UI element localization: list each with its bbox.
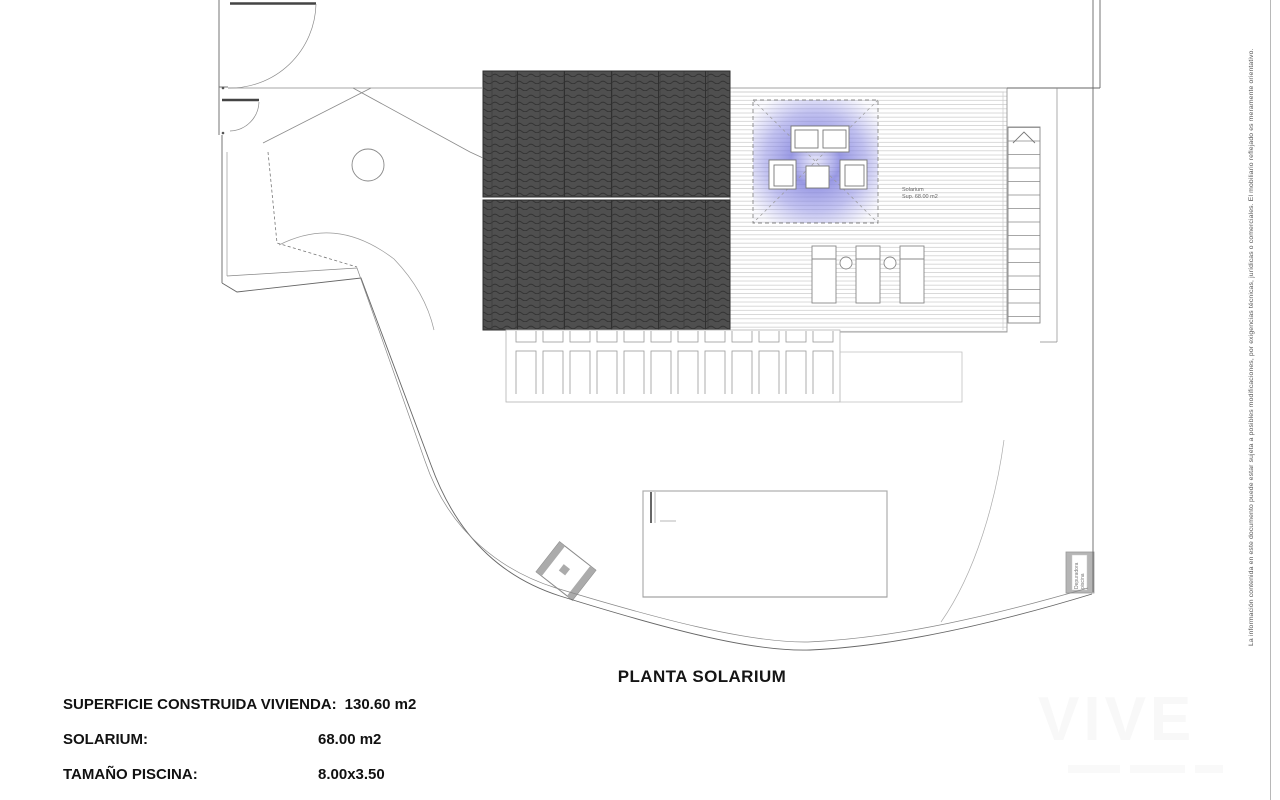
armchair-left bbox=[769, 160, 796, 189]
legend-value: 130.60 m2 bbox=[345, 696, 417, 713]
watermark-tagline-block bbox=[1195, 765, 1223, 773]
watermark-logo: VIVE bbox=[1038, 684, 1195, 755]
sheet-frame-rule bbox=[1270, 0, 1271, 800]
coffee-table bbox=[806, 166, 829, 188]
driveway-gates bbox=[222, 4, 316, 135]
legend-row: TAMAÑO PISCINA: 8.00x3.50 bbox=[63, 766, 416, 783]
drawing-sheet: Depuradora piscina bbox=[0, 0, 1280, 800]
pool-equipment-box: Depuradora piscina bbox=[1066, 552, 1094, 593]
svg-text:Solarium: Solarium bbox=[902, 187, 924, 193]
gate-swing-arc-north bbox=[228, 4, 316, 88]
legend-value: 8.00x3.50 bbox=[318, 766, 385, 783]
roof-north bbox=[483, 71, 730, 197]
gate-swing-arc-south bbox=[230, 102, 259, 131]
equipment-label-line2: piscina bbox=[1080, 573, 1086, 589]
armchair-right bbox=[840, 160, 867, 189]
legend-value: 68.00 m2 bbox=[318, 731, 381, 748]
side-table bbox=[884, 257, 896, 269]
legend-row: SOLARIUM: 68.00 m2 bbox=[63, 731, 416, 748]
side-table bbox=[840, 257, 852, 269]
watermark-tagline-block bbox=[1130, 765, 1185, 773]
staircase bbox=[1008, 127, 1040, 323]
legend-label: TAMAÑO PISCINA: bbox=[63, 766, 318, 783]
legend-label: SOLARIUM: bbox=[63, 731, 318, 748]
garden-structure bbox=[536, 542, 596, 600]
sun-loungers bbox=[812, 246, 924, 303]
legend-label: SUPERFICIE CONSTRUIDA VIVIENDA: bbox=[63, 696, 345, 713]
page-title: PLANTA SOLARIUM bbox=[618, 667, 786, 687]
sofa bbox=[791, 126, 849, 152]
area-legend: SUPERFICIE CONSTRUIDA VIVIENDA: 130.60 m… bbox=[63, 696, 416, 800]
porch-pergola-slats bbox=[506, 330, 962, 402]
legend-row: SUPERFICIE CONSTRUIDA VIVIENDA: 130.60 m… bbox=[63, 696, 416, 713]
svg-text:Sup. 68.00 m2: Sup. 68.00 m2 bbox=[902, 194, 938, 200]
roof-south bbox=[483, 200, 730, 330]
swimming-pool bbox=[643, 491, 887, 597]
tree bbox=[352, 149, 384, 181]
watermark-tagline-block bbox=[1068, 765, 1120, 773]
legal-disclaimer-vertical: La información contenida en este documen… bbox=[1248, 0, 1262, 646]
